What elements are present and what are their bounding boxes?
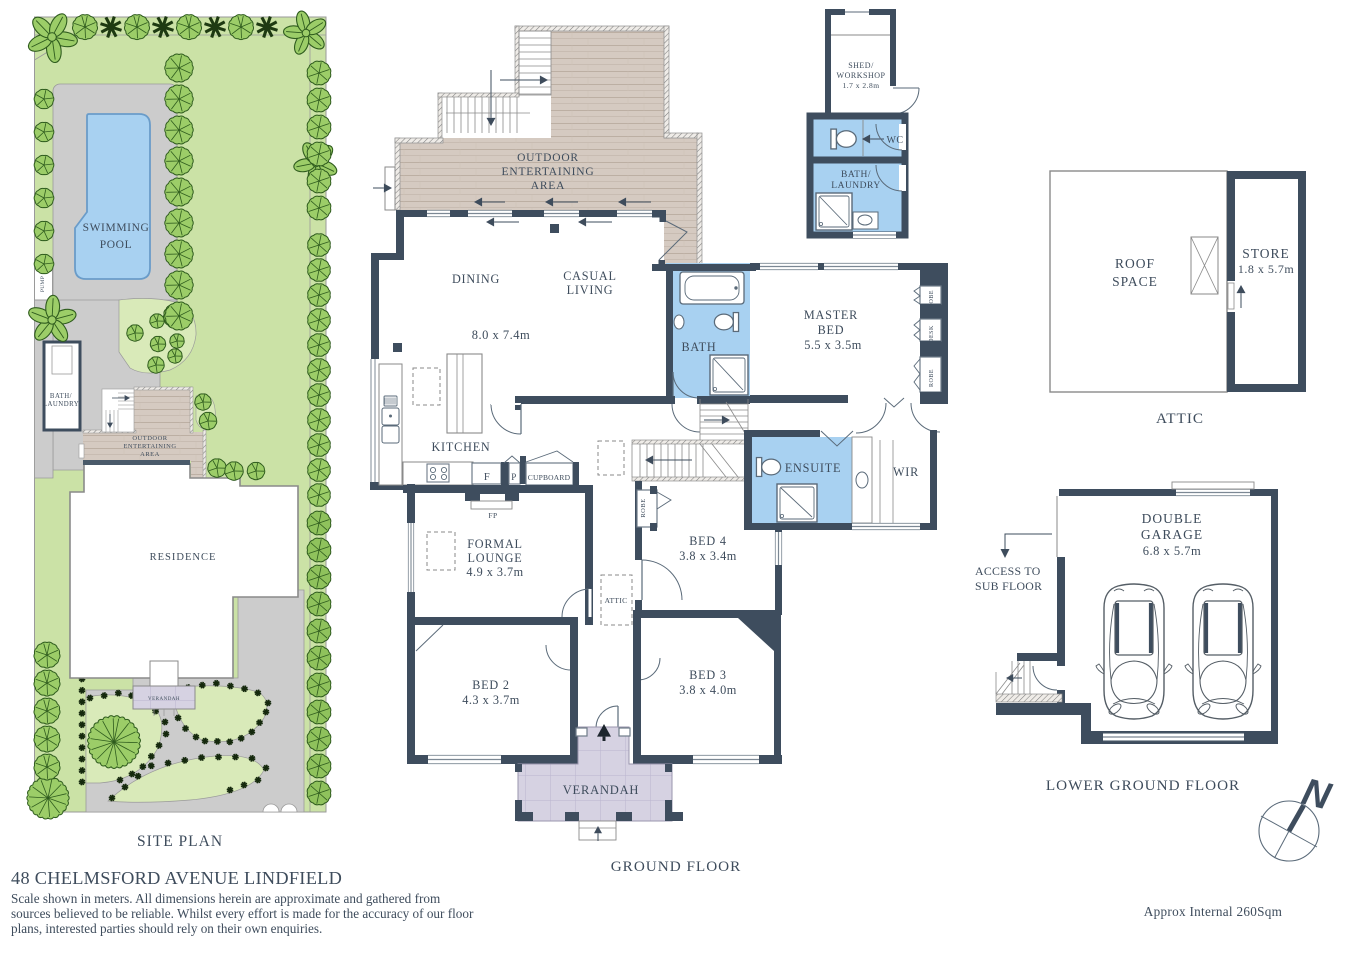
svg-text:LOUNGE: LOUNGE bbox=[468, 551, 523, 565]
svg-text:Scale shown in meters. All dim: Scale shown in meters. All dimensions he… bbox=[11, 891, 441, 906]
svg-text:WIR: WIR bbox=[893, 465, 919, 479]
svg-text:SWIMMING: SWIMMING bbox=[83, 222, 150, 234]
svg-text:P: P bbox=[511, 472, 517, 482]
svg-text:ENTERTAINING: ENTERTAINING bbox=[123, 443, 176, 450]
svg-text:OUTDOOR: OUTDOOR bbox=[517, 152, 579, 164]
svg-text:OUTDOOR: OUTDOOR bbox=[132, 435, 167, 442]
svg-text:LOWER GROUND FLOOR: LOWER GROUND FLOOR bbox=[1046, 777, 1240, 794]
svg-text:RESIDENCE: RESIDENCE bbox=[150, 552, 217, 563]
svg-text:SHED/: SHED/ bbox=[848, 61, 874, 70]
svg-text:STORE: STORE bbox=[1242, 246, 1290, 261]
svg-text:AREA: AREA bbox=[531, 180, 566, 192]
svg-text:WC: WC bbox=[886, 135, 903, 146]
svg-text:BED 3: BED 3 bbox=[689, 668, 727, 682]
svg-text:DOUBLE: DOUBLE bbox=[1142, 511, 1203, 526]
svg-text:MASTER: MASTER bbox=[804, 308, 858, 322]
svg-text:VERANDAH: VERANDAH bbox=[563, 783, 640, 797]
svg-text:ENTERTAINING: ENTERTAINING bbox=[502, 166, 595, 178]
svg-text:ATTIC: ATTIC bbox=[1156, 410, 1204, 427]
svg-text:POOL: POOL bbox=[100, 239, 132, 251]
svg-text:FP: FP bbox=[488, 511, 497, 520]
svg-text:AREA: AREA bbox=[140, 451, 160, 458]
svg-text:VERANDAH: VERANDAH bbox=[148, 697, 180, 702]
svg-text:SUB FLOOR: SUB FLOOR bbox=[975, 579, 1042, 593]
svg-text:BATH: BATH bbox=[681, 340, 716, 354]
svg-text:1.7 x 2.8m: 1.7 x 2.8m bbox=[842, 81, 879, 90]
svg-text:plans, interested parties shou: plans, interested parties should rely on… bbox=[11, 921, 322, 936]
svg-text:BED 2: BED 2 bbox=[472, 678, 510, 692]
svg-text:BATH/: BATH/ bbox=[841, 170, 871, 180]
svg-text:4.3 x 3.7m: 4.3 x 3.7m bbox=[462, 693, 520, 707]
svg-text:ATTIC: ATTIC bbox=[605, 596, 628, 605]
svg-text:F: F bbox=[484, 472, 490, 483]
svg-text:FORMAL: FORMAL bbox=[467, 537, 523, 551]
svg-text:ENSUITE: ENSUITE bbox=[785, 461, 841, 475]
svg-text:6.8 x 5.7m: 6.8 x 5.7m bbox=[1143, 544, 1201, 558]
svg-text:ROBE: ROBE bbox=[640, 498, 647, 517]
svg-text:LIVING: LIVING bbox=[567, 283, 614, 297]
svg-text:BED: BED bbox=[818, 323, 845, 337]
svg-text:8.0 x 7.4m: 8.0 x 7.4m bbox=[472, 328, 530, 342]
svg-text:ROOF: ROOF bbox=[1115, 256, 1155, 271]
svg-text:GROUND FLOOR: GROUND FLOOR bbox=[611, 858, 742, 875]
svg-text:WORKSHOP: WORKSHOP bbox=[837, 71, 886, 80]
svg-text:1.8 x 5.7m: 1.8 x 5.7m bbox=[1238, 262, 1295, 276]
svg-text:48 CHELMSFORD AVENUE LINDFIELD: 48 CHELMSFORD AVENUE LINDFIELD bbox=[11, 868, 342, 888]
svg-text:4.9 x 3.7m: 4.9 x 3.7m bbox=[466, 565, 523, 579]
svg-text:CUPBOARD: CUPBOARD bbox=[528, 473, 571, 482]
svg-text:SPACE: SPACE bbox=[1112, 274, 1158, 289]
svg-text:BATH/: BATH/ bbox=[50, 393, 72, 400]
svg-text:3.8 x 4.0m: 3.8 x 4.0m bbox=[679, 683, 737, 697]
svg-text:5.5 x 3.5m: 5.5 x 3.5m bbox=[804, 338, 862, 352]
svg-text:sources believed to be reliabl: sources believed to be reliable. Whilst … bbox=[11, 906, 474, 921]
svg-text:BED 4: BED 4 bbox=[689, 534, 727, 548]
svg-text:GARAGE: GARAGE bbox=[1141, 527, 1203, 542]
svg-text:CASUAL: CASUAL bbox=[563, 269, 617, 283]
svg-text:DINING: DINING bbox=[452, 272, 500, 286]
svg-text:KITCHEN: KITCHEN bbox=[431, 440, 490, 454]
svg-text:PUMP: PUMP bbox=[40, 276, 46, 292]
svg-text:Approx Internal 260Sqm: Approx Internal 260Sqm bbox=[1144, 904, 1283, 919]
svg-text:SITE PLAN: SITE PLAN bbox=[137, 833, 223, 850]
svg-text:LAUNDRY: LAUNDRY bbox=[831, 181, 880, 191]
svg-text:ROBE: ROBE bbox=[929, 369, 935, 387]
svg-text:ACCESS TO: ACCESS TO bbox=[975, 564, 1041, 578]
svg-text:3.8 x 3.4m: 3.8 x 3.4m bbox=[679, 549, 737, 563]
svg-text:DESK: DESK bbox=[929, 325, 935, 343]
svg-text:LAUNDRY: LAUNDRY bbox=[43, 401, 79, 408]
